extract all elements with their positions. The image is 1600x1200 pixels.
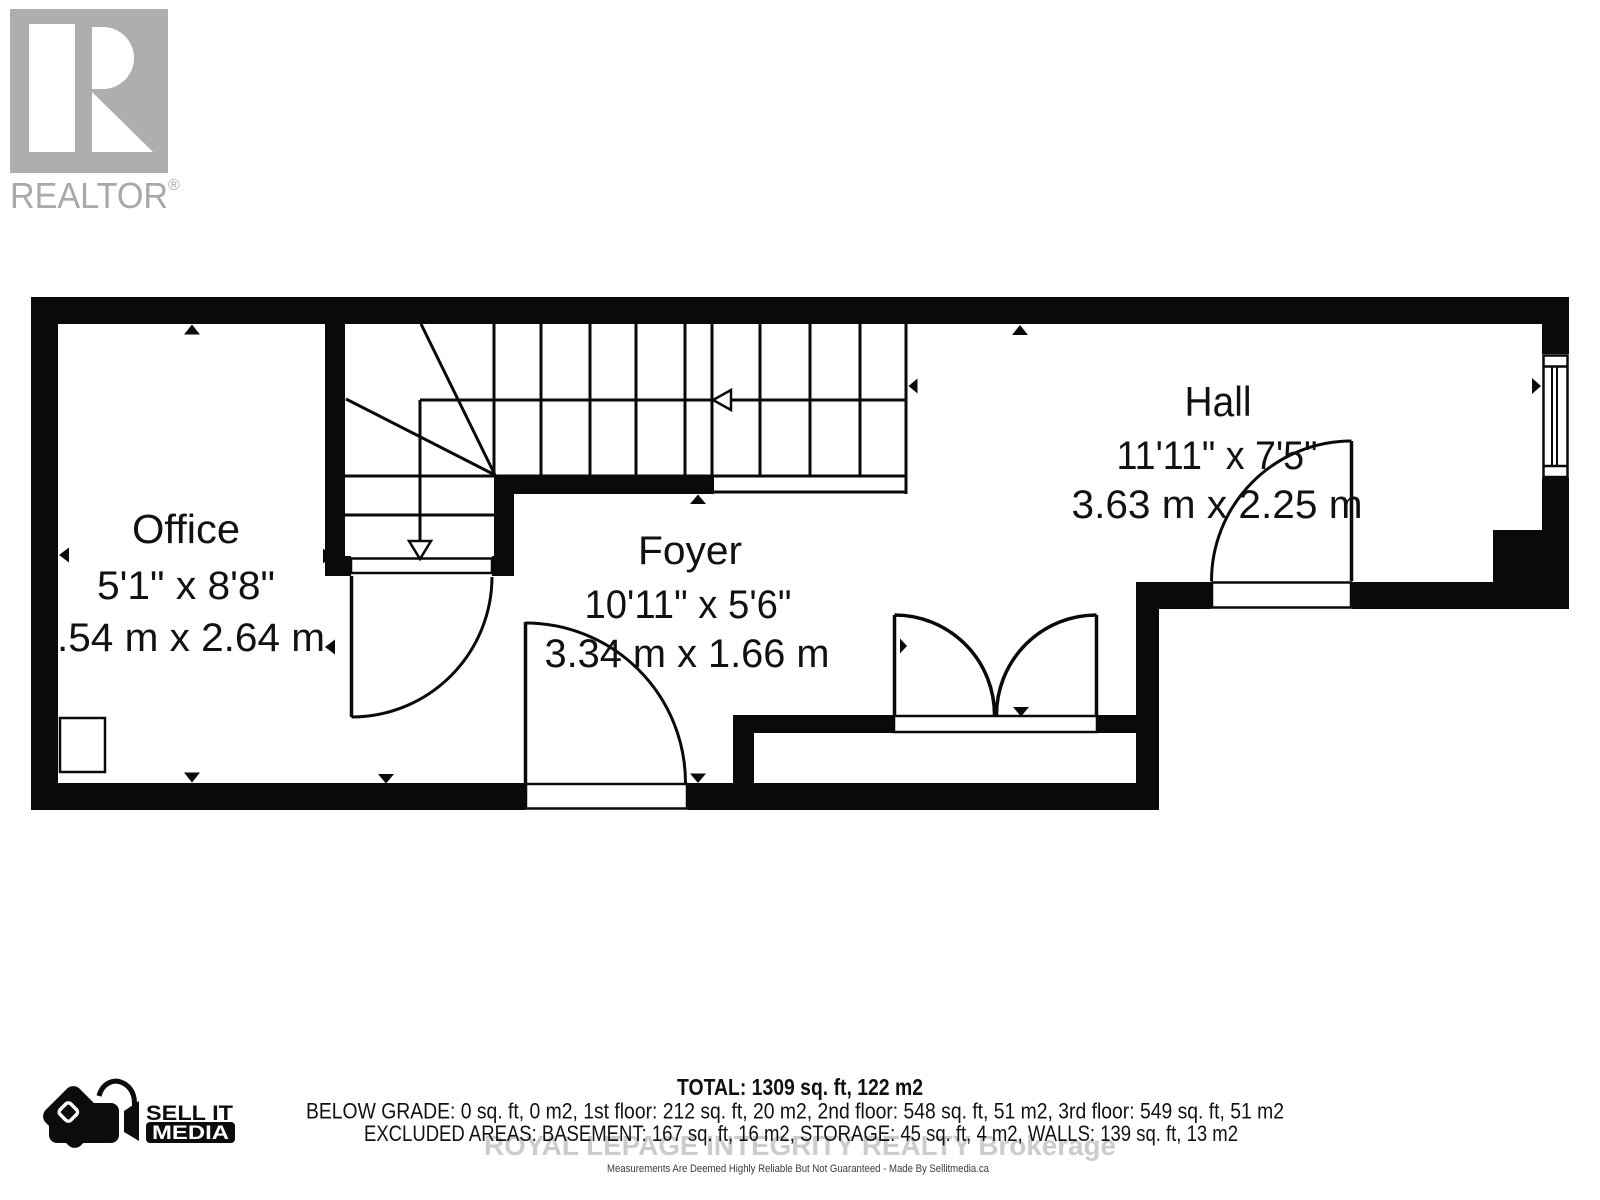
- svg-text:11'11" x 7'5": 11'11" x 7'5": [1117, 434, 1318, 478]
- svg-text:REALTOR: REALTOR: [10, 175, 168, 216]
- svg-text:MEDIA: MEDIA: [152, 1123, 229, 1144]
- svg-text:Hall: Hall: [1185, 378, 1252, 425]
- svg-text:®: ®: [168, 177, 180, 194]
- svg-text:EXCLUDED AREAS: BASEMENT: 167: EXCLUDED AREAS: BASEMENT: 167 sq. ft, 16…: [364, 1121, 1238, 1146]
- svg-text:TOTAL: 1309 sq. ft, 122 m2: TOTAL: 1309 sq. ft, 122 m2: [677, 1074, 923, 1100]
- svg-text:BELOW GRADE: 0 sq. ft, 0 m2, 1: BELOW GRADE: 0 sq. ft, 0 m2, 1st floor: …: [306, 1099, 1284, 1124]
- svg-text:10'11" x 5'6": 10'11" x 5'6": [585, 583, 792, 627]
- svg-text:Measurements Are Deemed Highly: Measurements Are Deemed Highly Reliable …: [607, 1163, 990, 1175]
- svg-text:SELL IT: SELL IT: [146, 1102, 233, 1125]
- svg-text:5'1" x 8'8": 5'1" x 8'8": [97, 564, 275, 608]
- svg-text:Foyer: Foyer: [638, 529, 742, 573]
- svg-text:3.34 m x 1.66 m: 3.34 m x 1.66 m: [545, 632, 830, 676]
- svg-text:3.63 m x 2.25 m: 3.63 m x 2.25 m: [1072, 483, 1363, 527]
- svg-text:.54 m x 2.64 m: .54 m x 2.64 m: [57, 616, 325, 660]
- svg-text:Office: Office: [132, 506, 240, 552]
